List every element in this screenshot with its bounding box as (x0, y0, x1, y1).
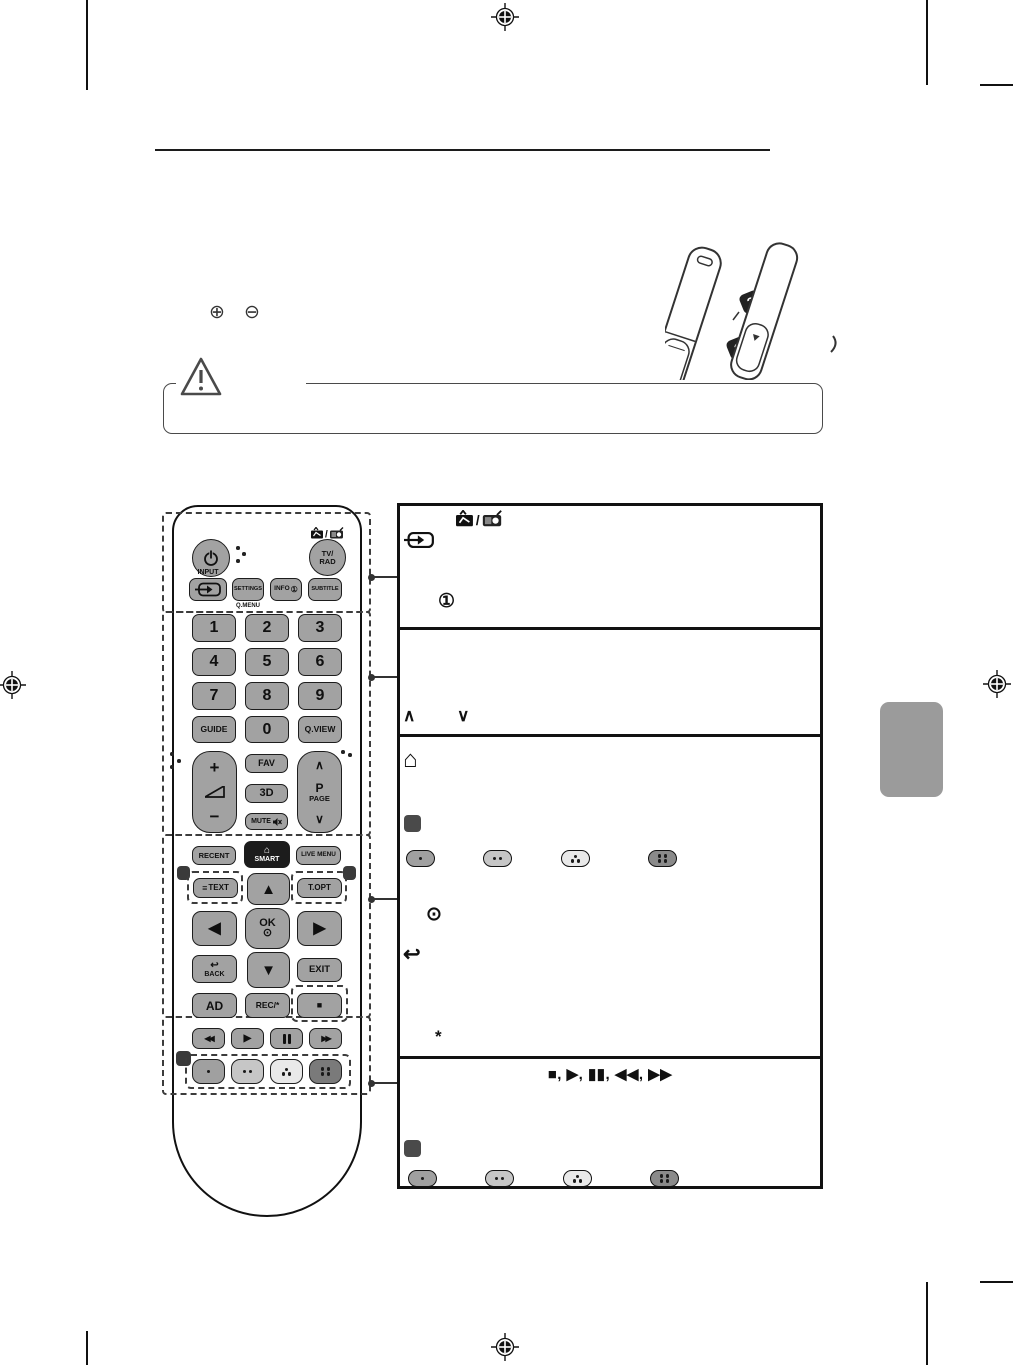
connector-line-2 (372, 676, 397, 678)
crop-mark (86, 0, 88, 90)
play-icon: ▶ (244, 1034, 252, 1044)
rewind-icon: ◀◀ (204, 1035, 212, 1043)
registration-mark-top (491, 3, 519, 31)
digit-label: 4 (210, 654, 219, 670)
blue-button (309, 1059, 342, 1084)
qmenu-label: Q.MENU (227, 603, 269, 609)
decor-dot (170, 765, 174, 769)
yellow-button (270, 1059, 303, 1084)
recent-button: RECENT (192, 846, 236, 865)
fast-forward-icon: ▶▶ (321, 1035, 329, 1043)
play-button: ▶ (231, 1028, 264, 1049)
description-box-3: ⌂ ⊙ ↩ * (397, 734, 823, 1059)
page-label: PAGE (309, 795, 330, 803)
input-button (189, 578, 227, 601)
tv-rad-button: TV/ RAD (309, 539, 346, 576)
header-rule (155, 149, 770, 151)
registration-mark-right (983, 670, 1011, 698)
page-down-icon: ∨ (315, 813, 324, 825)
topt-label: T.OPT (308, 884, 331, 892)
description-panel: / ① ∧ ∨ ⌂ (397, 503, 823, 1189)
rec-button: REC/* (245, 993, 290, 1018)
manual-page: ⊕ ⊖ 2 1 (0, 0, 1013, 1365)
registration-mark-bottom (491, 1333, 519, 1361)
subtitle-button: SUBTITLE (308, 578, 342, 601)
connector-line-1 (372, 576, 397, 578)
rewind-button: ◀◀ (192, 1028, 225, 1049)
page-side-tab (880, 702, 943, 797)
info-label: INFO (274, 586, 290, 593)
stop-button: ■ (297, 993, 342, 1018)
back-button: ↩ BACK (192, 955, 237, 983)
info-circle-icon: ① (291, 586, 298, 594)
rec-label: REC/* (256, 1001, 280, 1010)
digit-4-button: 4 (192, 648, 236, 676)
back-arrow-icon: ↩ (210, 961, 218, 971)
yellow-button-icon (561, 850, 590, 867)
exit-label: EXIT (309, 965, 330, 975)
digit-label: 5 (263, 654, 272, 670)
fav-button: FAV (245, 754, 288, 773)
registration-mark-left (0, 671, 26, 699)
wheel-icon: ⊙ (263, 928, 272, 939)
ir-dot (236, 559, 240, 563)
info-button: INFO① (270, 578, 302, 601)
qview-button: Q.VIEW (298, 716, 342, 743)
digit-label: 9 (316, 688, 325, 704)
ad-button: AD (192, 993, 237, 1018)
four-dots-icon (321, 1067, 331, 1076)
power-icon (202, 549, 220, 567)
connector-dot-4 (368, 1080, 375, 1087)
decor-dot (170, 752, 174, 756)
digit-label: 7 (210, 688, 219, 704)
home-icon: ⌂ (264, 846, 270, 856)
digit-label: 1 (210, 620, 219, 636)
nav-right-button: ▶ (297, 911, 342, 946)
teletext-icon: ≡ (202, 884, 207, 893)
home-icon: ⌂ (403, 746, 418, 774)
digit-label: 3 (316, 620, 325, 636)
info-circle-icon: ① (438, 590, 455, 613)
description-box-4: ■, ▶, ▮▮, ◀◀, ▶▶ (397, 1056, 823, 1189)
digit-label: 2 (263, 620, 272, 636)
green-button-icon (483, 850, 512, 867)
ir-dot (242, 552, 246, 556)
tv-radio-mode-icons: / (311, 527, 345, 539)
live-menu-button: LIVE MENU (296, 846, 341, 865)
page-rocker: ∧ P PAGE ∨ (297, 751, 342, 833)
red-button-icon (408, 1170, 437, 1187)
volume-icon (205, 786, 225, 798)
fav-label: FAV (258, 759, 275, 768)
subtitle-label: SUBTITLE (311, 587, 338, 593)
back-arrow-icon: ↩ (403, 942, 421, 967)
dark-square-icon (404, 1140, 421, 1157)
nav-left-button: ◀ (192, 911, 237, 946)
caution-box (163, 383, 823, 434)
digit-6-button: 6 (298, 648, 342, 676)
digit-8-button: 8 (245, 682, 289, 710)
description-box-2: ∧ ∨ (397, 627, 823, 737)
digit-9-button: 9 (298, 682, 342, 710)
digit-3-button: 3 (298, 614, 342, 642)
guide-label: GUIDE (201, 725, 228, 734)
text-button: ≡TEXT (193, 878, 238, 898)
two-dots-icon (243, 1070, 253, 1074)
connector-dot-1 (368, 574, 375, 581)
ad-label: AD (206, 1000, 223, 1012)
blue-button-icon (648, 850, 677, 867)
battery-install-illustration: 2 1 (665, 240, 845, 380)
qview-label: Q.VIEW (305, 725, 336, 734)
mute-label: MUTE (251, 818, 271, 825)
connector-dot-3 (368, 896, 375, 903)
digit-label: 0 (263, 722, 272, 738)
volume-down-label: − (210, 808, 220, 825)
page-up-icon: ∧ (315, 759, 324, 771)
smart-label: SMART (255, 856, 280, 863)
mute-button: MUTE (245, 813, 288, 830)
ok-button: OK ⊙ (245, 908, 290, 949)
3d-label: 3D (259, 788, 273, 799)
connector-line-3 (372, 898, 397, 900)
exit-button: EXIT (297, 958, 342, 982)
green-button (231, 1059, 264, 1084)
digit-label: 6 (316, 654, 325, 670)
digit-1-button: 1 (192, 614, 236, 642)
decor-dot (177, 759, 181, 763)
smart-button: ⌂ SMART (244, 841, 290, 868)
input-icon (404, 531, 434, 549)
digit-2-button: 2 (245, 614, 289, 642)
svg-text:/: / (476, 512, 480, 527)
pause-icon (283, 1034, 291, 1044)
description-box-1: / ① (397, 503, 823, 630)
text-label: TEXT (208, 884, 228, 892)
digit-0-button: 0 (245, 716, 289, 743)
settings-button: SETTINGS (232, 578, 264, 601)
red-button-icon (406, 850, 435, 867)
one-dot-icon (207, 1070, 211, 1074)
crop-mark (86, 1331, 88, 1365)
input-icon (195, 582, 221, 597)
digit-7-button: 7 (192, 682, 236, 710)
topt-button: T.OPT (297, 878, 342, 898)
mute-icon (273, 818, 282, 826)
tv-rad-label-2: RAD (319, 558, 335, 566)
crop-mark (926, 0, 928, 85)
asterisk-note: * (435, 1027, 442, 1047)
digit-label: 8 (263, 688, 272, 704)
three-dots-icon (282, 1068, 292, 1076)
connector-line-4 (372, 1082, 397, 1084)
input-label: INPUT (188, 569, 228, 576)
yellow-button-icon (563, 1170, 592, 1187)
guide-button: GUIDE (192, 716, 236, 743)
page-p-label: P (315, 782, 323, 794)
red-button (192, 1059, 225, 1084)
connector-dot-2 (368, 674, 375, 681)
left-arrow-icon: ◀ (208, 921, 220, 937)
3d-button: 3D (245, 784, 288, 803)
up-arrow-icon: ▲ (261, 882, 276, 897)
stop-icon: ■ (317, 1001, 322, 1010)
volume-rocker: + − (192, 751, 237, 833)
back-label: BACK (204, 971, 224, 978)
right-arrow-icon: ▶ (313, 921, 325, 937)
minus-polarity-icon: ⊖ (244, 301, 260, 324)
blue-button-icon (650, 1170, 679, 1187)
live-menu-label: LIVE MENU (301, 852, 336, 858)
warning-triangle-icon (179, 355, 223, 399)
tv-rad-label-1: TV/ (322, 550, 334, 558)
crop-mark (980, 1281, 1013, 1283)
fast-forward-button: ▶▶ (309, 1028, 342, 1049)
settings-label: SETTINGS (234, 587, 262, 593)
nav-up-button: ▲ (247, 873, 290, 905)
recent-label: RECENT (199, 852, 230, 860)
crop-mark (980, 84, 1013, 86)
digit-5-button: 5 (245, 648, 289, 676)
crop-mark (926, 1282, 928, 1365)
nav-down-button: ▼ (247, 952, 290, 988)
green-button-icon (485, 1170, 514, 1187)
decor-dot (348, 753, 352, 757)
dark-square-icon (404, 815, 421, 832)
plus-polarity-icon: ⊕ (209, 301, 225, 324)
down-arrow-icon: ▼ (261, 963, 276, 978)
tv-radio-mode-icons: / (456, 510, 504, 527)
chevron-up-icon: ∧ (403, 706, 415, 726)
pause-button (270, 1028, 303, 1049)
wheel-icon: ⊙ (426, 903, 442, 926)
chevron-down-icon: ∨ (457, 706, 469, 726)
decor-dot (341, 750, 345, 754)
ir-dot (236, 546, 240, 550)
playback-icons-line: ■, ▶, ▮▮, ◀◀, ▶▶ (400, 1065, 820, 1083)
svg-text:/: / (325, 530, 328, 540)
volume-up-label: + (210, 759, 220, 776)
